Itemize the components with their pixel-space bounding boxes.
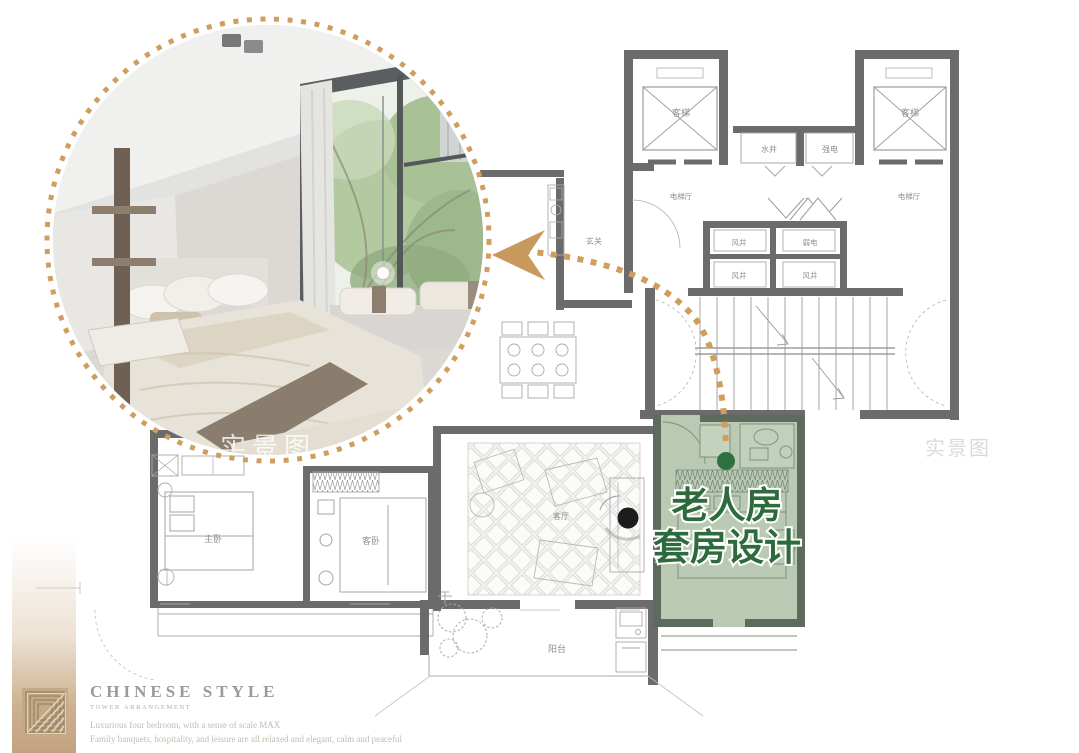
room-label-entry: 玄关 — [586, 236, 602, 246]
room-label-elevator-hall-left: 电梯厅 — [670, 191, 693, 201]
guest-bedroom — [310, 466, 436, 606]
bay-window-south — [95, 601, 440, 680]
trail-endpoint-dot — [717, 452, 735, 470]
room-label-air-shaft-2: 风井 — [732, 270, 747, 280]
plan-watermark: 实景图 — [925, 436, 991, 460]
suite-title-line1: 老人房 — [672, 483, 783, 527]
bedroom-photo: 实景图 — [48, 20, 515, 520]
plan-and-photo-graphic: 客梯 客梯 水井 强电 电梯厅 电梯厅 风井 弱电 风井 风井 玄关 主卧 客卧… — [0, 0, 1079, 753]
footer-subtitle: TOWER ARRANGEMENT — [90, 704, 530, 711]
photo-circle[interactable]: 实景图 — [47, 19, 515, 520]
brand-logo — [21, 685, 69, 739]
elevator-shaft-left — [624, 50, 728, 165]
footer-tagline-2: Family banquets, hospitality, and leisur… — [90, 733, 530, 747]
room-label-weak-electric: 弱电 — [803, 237, 818, 247]
elevator-shaft-right — [855, 50, 959, 165]
room-label-air-shaft-3: 风井 — [803, 270, 818, 280]
footer-tagline-1: Luxurious four bedroom, with a sense of … — [90, 719, 530, 733]
desk-chair-icon — [618, 508, 639, 529]
geometric-square-logo-icon — [21, 685, 69, 739]
dining-table — [500, 322, 576, 398]
suite-title-line2: 套房设计 — [653, 525, 801, 569]
room-label-elevator-hall-right: 电梯厅 — [898, 191, 921, 201]
room-label-elevator-left: 客梯 — [672, 107, 690, 119]
footer: CHINESE STYLE TOWER ARRANGEMENT Luxuriou… — [90, 682, 530, 747]
living-room — [433, 426, 653, 611]
room-label-living-room: 客厅 — [553, 511, 569, 521]
room-label-strong-electric: 强电 — [822, 144, 838, 154]
suite-title: 老人房 套房设计 — [653, 483, 801, 569]
presentation-page: 客梯 客梯 水井 强电 电梯厅 电梯厅 风井 弱电 风井 风井 玄关 主卧 客卧… — [0, 0, 1079, 753]
room-label-balcony: 阳台 — [548, 643, 566, 655]
arrowhead-icon — [492, 230, 545, 280]
room-label-master-bedroom: 主卧 — [204, 533, 222, 545]
room-label-guest-bedroom: 客卧 — [362, 535, 380, 547]
room-label-air-shaft-1: 风井 — [732, 237, 747, 247]
footer-title: CHINESE STYLE — [90, 682, 530, 702]
room-label-elevator-right: 客梯 — [901, 107, 919, 119]
room-label-water-shaft: 水井 — [761, 144, 777, 154]
shaft-block — [703, 198, 847, 293]
